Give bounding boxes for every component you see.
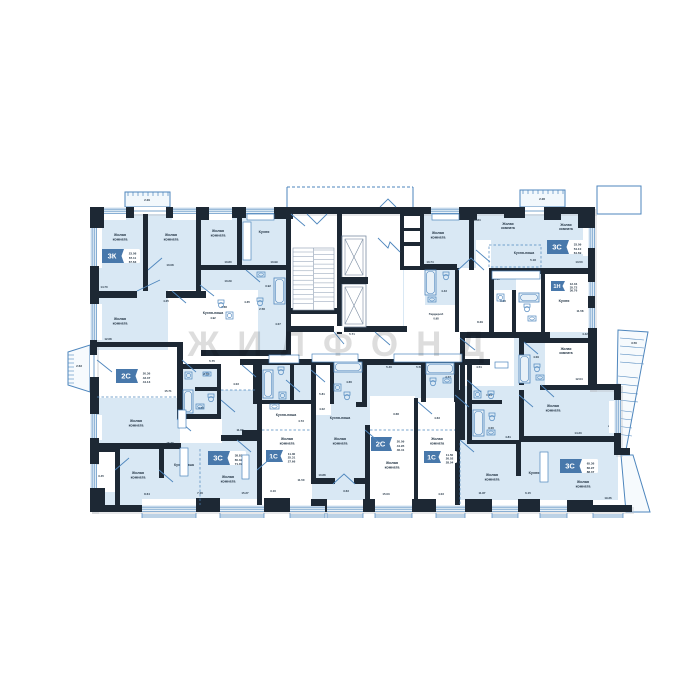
svg-text:2.63: 2.63 (76, 364, 82, 368)
svg-text:Кухня: Кухня (529, 471, 540, 475)
svg-text:4.92: 4.92 (210, 316, 216, 320)
svg-text:комната: комната (485, 477, 501, 481)
svg-text:14.70: 14.70 (100, 285, 108, 289)
svg-text:Жилая: Жилая (221, 475, 234, 479)
svg-text:Жилая: Жилая (129, 419, 142, 423)
svg-text:Гардероб: Гардероб (429, 312, 444, 316)
svg-text:3.50: 3.50 (631, 341, 637, 345)
svg-text:комната: комната (546, 408, 562, 412)
svg-text:Жилая: Жилая (333, 437, 346, 441)
svg-text:46.41: 46.41 (397, 448, 405, 452)
svg-text:10.29: 10.29 (224, 279, 232, 283)
svg-text:комната: комната (131, 475, 147, 479)
svg-text:15.27: 15.27 (241, 491, 249, 495)
svg-text:10.08: 10.08 (166, 263, 174, 267)
svg-text:ЖИЛФОНД: ЖИЛФОНД (187, 325, 503, 364)
svg-text:4.03: 4.03 (438, 492, 444, 496)
svg-text:0.98: 0.98 (433, 317, 439, 321)
svg-text:13.50: 13.50 (575, 260, 583, 264)
svg-text:Жилая: Жилая (113, 233, 126, 237)
svg-text:15.30: 15.30 (166, 441, 174, 445)
svg-text:комната: комната (385, 465, 401, 469)
svg-text:4.42: 4.42 (582, 332, 588, 336)
svg-text:19.36: 19.36 (604, 496, 612, 500)
svg-text:44.13: 44.13 (143, 380, 151, 384)
svg-text:5.59: 5.59 (416, 365, 422, 369)
svg-text:комната: комната (164, 237, 180, 241)
svg-text:10.84: 10.84 (473, 218, 481, 222)
svg-text:комната: комната (430, 442, 444, 446)
svg-text:15.71: 15.71 (164, 389, 172, 393)
svg-text:4.09: 4.09 (533, 355, 539, 359)
svg-text:Жилая: Жилая (431, 231, 444, 235)
svg-text:Кухня-ниша: Кухня-ниша (330, 416, 351, 420)
svg-text:12.68: 12.68 (104, 337, 112, 341)
svg-text:11.58: 11.58 (576, 309, 583, 313)
svg-text:2.58: 2.58 (259, 307, 265, 311)
svg-text:4.63: 4.63 (434, 416, 440, 420)
svg-text:1Н: 1Н (553, 284, 560, 290)
svg-text:10.88: 10.88 (318, 473, 326, 477)
svg-text:10.74: 10.74 (426, 260, 434, 264)
svg-text:Жилая: Жилая (385, 461, 398, 465)
svg-text:Кухня-ниша: Кухня-ниша (514, 251, 535, 255)
svg-text:комната: комната (501, 226, 515, 230)
svg-text:27.66: 27.66 (288, 459, 296, 463)
svg-text:Кухня-ниша: Кухня-ниша (203, 311, 224, 315)
svg-text:Жилая: Жилая (546, 404, 559, 408)
svg-text:Кухня: Кухня (559, 299, 570, 303)
svg-text:комната: комната (211, 233, 227, 237)
svg-text:3.10: 3.10 (270, 489, 276, 493)
svg-text:Кухня: Кухня (259, 230, 270, 234)
svg-text:3К: 3К (108, 252, 117, 261)
svg-text:3.68: 3.68 (393, 412, 399, 416)
svg-text:комната: комната (333, 441, 349, 445)
svg-text:комната: комната (221, 479, 237, 483)
svg-text:3.63: 3.63 (343, 489, 349, 493)
svg-text:15.03: 15.03 (382, 492, 390, 496)
svg-text:8.64: 8.64 (144, 492, 150, 496)
svg-text:10.80: 10.80 (224, 260, 232, 264)
svg-text:11.60: 11.60 (236, 428, 243, 432)
svg-text:1С: 1С (269, 453, 278, 460)
svg-text:4.51: 4.51 (476, 365, 482, 369)
svg-text:11.87: 11.87 (478, 491, 485, 495)
svg-text:комната: комната (559, 227, 573, 231)
svg-text:1С: 1С (427, 454, 436, 461)
svg-text:Жилая: Жилая (280, 437, 293, 441)
svg-text:Жилая: Жилая (485, 473, 498, 477)
svg-text:Жилая: Жилая (430, 437, 443, 441)
svg-text:комната: комната (113, 237, 129, 241)
svg-text:комната: комната (576, 484, 592, 488)
svg-text:комната: комната (129, 423, 145, 427)
svg-text:5.81: 5.81 (319, 392, 325, 396)
svg-text:4.43: 4.43 (441, 289, 447, 293)
svg-text:4.66: 4.66 (346, 380, 352, 384)
svg-text:3.00: 3.00 (488, 426, 494, 430)
svg-text:комната: комната (559, 351, 572, 355)
svg-text:комната: комната (431, 235, 447, 239)
svg-text:3.92: 3.92 (265, 284, 271, 288)
svg-text:3С: 3С (552, 243, 562, 252)
svg-text:2.68: 2.68 (221, 305, 227, 309)
svg-text:Кухня-ниша: Кухня-ниша (276, 413, 297, 417)
svg-text:3.45: 3.45 (98, 474, 104, 478)
svg-text:3С: 3С (565, 462, 575, 471)
svg-text:5.40: 5.40 (386, 365, 392, 369)
svg-text:28.04: 28.04 (446, 460, 454, 464)
svg-text:12.04: 12.04 (575, 377, 583, 381)
svg-text:6.15: 6.15 (525, 491, 531, 495)
svg-text:71.09: 71.09 (235, 462, 243, 466)
svg-text:4.03: 4.03 (233, 382, 239, 386)
svg-text:2С: 2С (121, 372, 131, 381)
svg-text:4.25: 4.25 (163, 299, 169, 303)
svg-text:Жилая: Жилая (211, 229, 224, 233)
svg-text:7.06: 7.06 (197, 491, 203, 495)
svg-text:4.02: 4.02 (319, 407, 325, 411)
svg-text:11.50: 11.50 (297, 478, 304, 482)
svg-text:2.29: 2.29 (144, 198, 150, 202)
svg-text:4.81: 4.81 (505, 435, 511, 439)
svg-text:комната: комната (113, 321, 129, 325)
svg-text:комната: комната (280, 441, 296, 445)
svg-text:88.37: 88.37 (587, 470, 595, 474)
svg-text:64.69: 64.69 (574, 251, 582, 255)
svg-text:4.35: 4.35 (244, 300, 250, 304)
svg-text:4.27: 4.27 (445, 375, 451, 379)
svg-text:10.99: 10.99 (270, 260, 278, 264)
svg-text:67.63: 67.63 (129, 260, 137, 264)
svg-text:Жилая: Жилая (131, 471, 144, 475)
svg-text:3С: 3С (213, 454, 223, 463)
svg-text:Жилая: Жилая (113, 317, 126, 321)
svg-text:4.73: 4.73 (298, 419, 304, 423)
svg-text:14.33: 14.33 (574, 431, 582, 435)
svg-text:2.28: 2.28 (539, 197, 545, 201)
svg-text:5.18: 5.18 (530, 258, 536, 262)
svg-text:36.76: 36.76 (570, 288, 578, 292)
svg-text:Жилая: Жилая (164, 233, 177, 237)
svg-text:Жилая: Жилая (576, 480, 589, 484)
svg-text:8.29: 8.29 (477, 320, 483, 324)
